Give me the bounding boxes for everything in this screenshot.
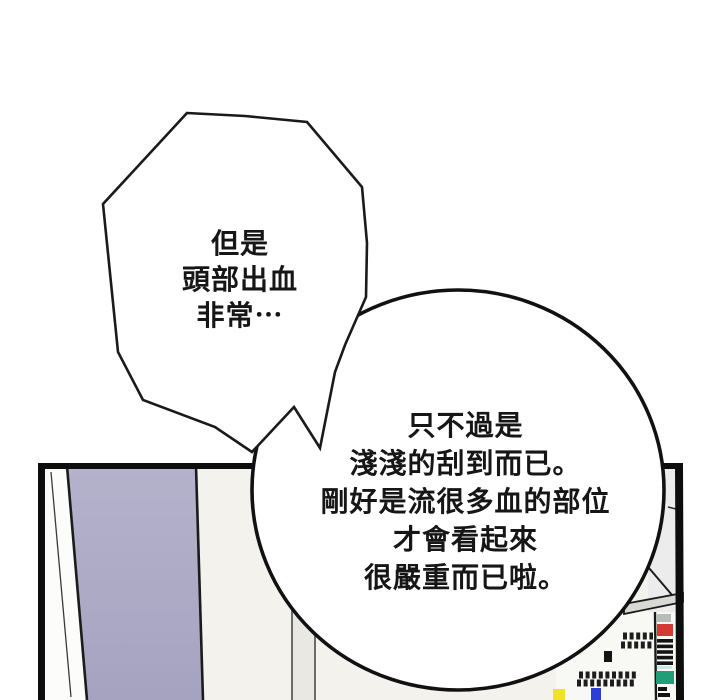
bubble-line: 但是 (120, 226, 360, 262)
spine-red (657, 624, 673, 636)
spine-teal (656, 671, 674, 684)
spine-lightblue (657, 666, 672, 669)
book-yellow (553, 689, 565, 700)
door-stripe (67, 466, 203, 700)
bubble-line: 淺淺的刮到而已。 (293, 445, 638, 483)
spine-gray (657, 614, 671, 622)
book-black (604, 651, 612, 662)
speech-bubble-round-text: 只不過是 淺淺的刮到而已。 剛好是流很多血的部位 才會看起來 很嚴重而已啦。 (293, 407, 638, 597)
shelf-divider (655, 612, 656, 700)
bubble-line: 很嚴重而已啦。 (293, 559, 638, 597)
bubble-line: 非常⋯ (120, 298, 360, 334)
bubble-line: 才會看起來 (293, 521, 638, 559)
bubble-line: 頭部出血 (120, 262, 360, 298)
panel-border-left (38, 463, 45, 700)
panel-border-right (675, 463, 684, 700)
speech-bubble-spiky-text: 但是 頭部出血 非常⋯ (120, 226, 360, 334)
comic-page: 但是 頭部出血 非常⋯ 只不過是 淺淺的刮到而已。 剛好是流很多血的部位 才會看… (0, 0, 720, 700)
book-blue (591, 688, 601, 700)
bubble-line: 剛好是流很多血的部位 (293, 483, 638, 521)
bubble-line: 只不過是 (293, 407, 638, 445)
